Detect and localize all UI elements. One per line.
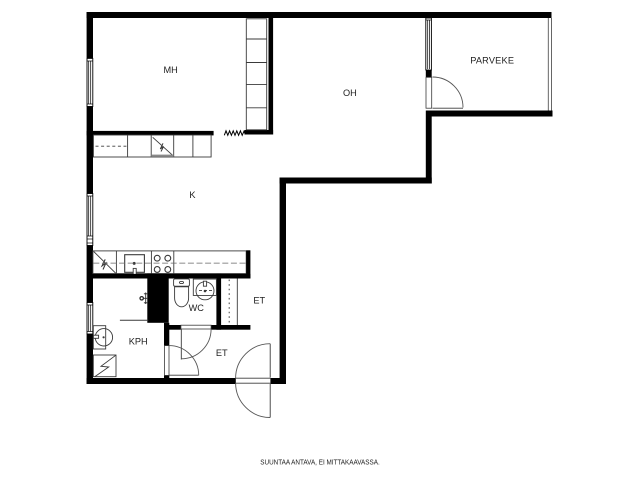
- svg-text:ET: ET: [216, 348, 228, 358]
- svg-text:MH: MH: [163, 65, 177, 75]
- svg-text:K: K: [189, 190, 196, 200]
- svg-text:ET: ET: [253, 296, 265, 306]
- svg-text:PARVEKE: PARVEKE: [470, 55, 514, 65]
- svg-text:WC: WC: [189, 303, 205, 313]
- svg-text:SUUNTAA ANTAVA, EI MITTAKAAVAS: SUUNTAA ANTAVA, EI MITTAKAAVASSA.: [260, 460, 380, 467]
- svg-text:OH: OH: [343, 88, 357, 98]
- svg-text:KPH: KPH: [129, 337, 148, 347]
